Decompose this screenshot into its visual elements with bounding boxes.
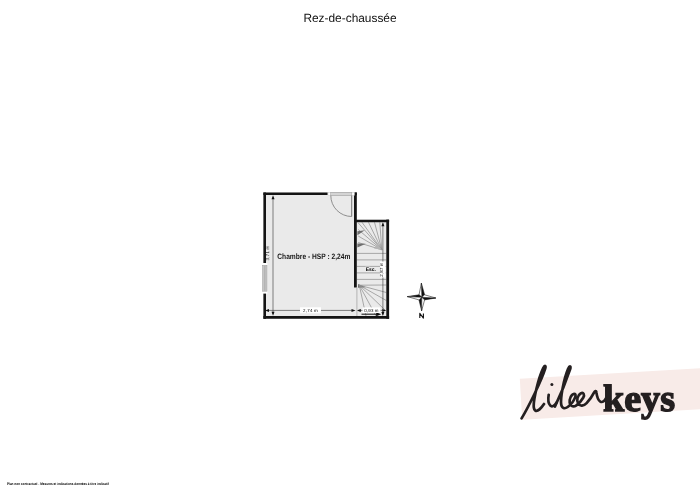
svg-text:keys: keys: [603, 378, 675, 420]
